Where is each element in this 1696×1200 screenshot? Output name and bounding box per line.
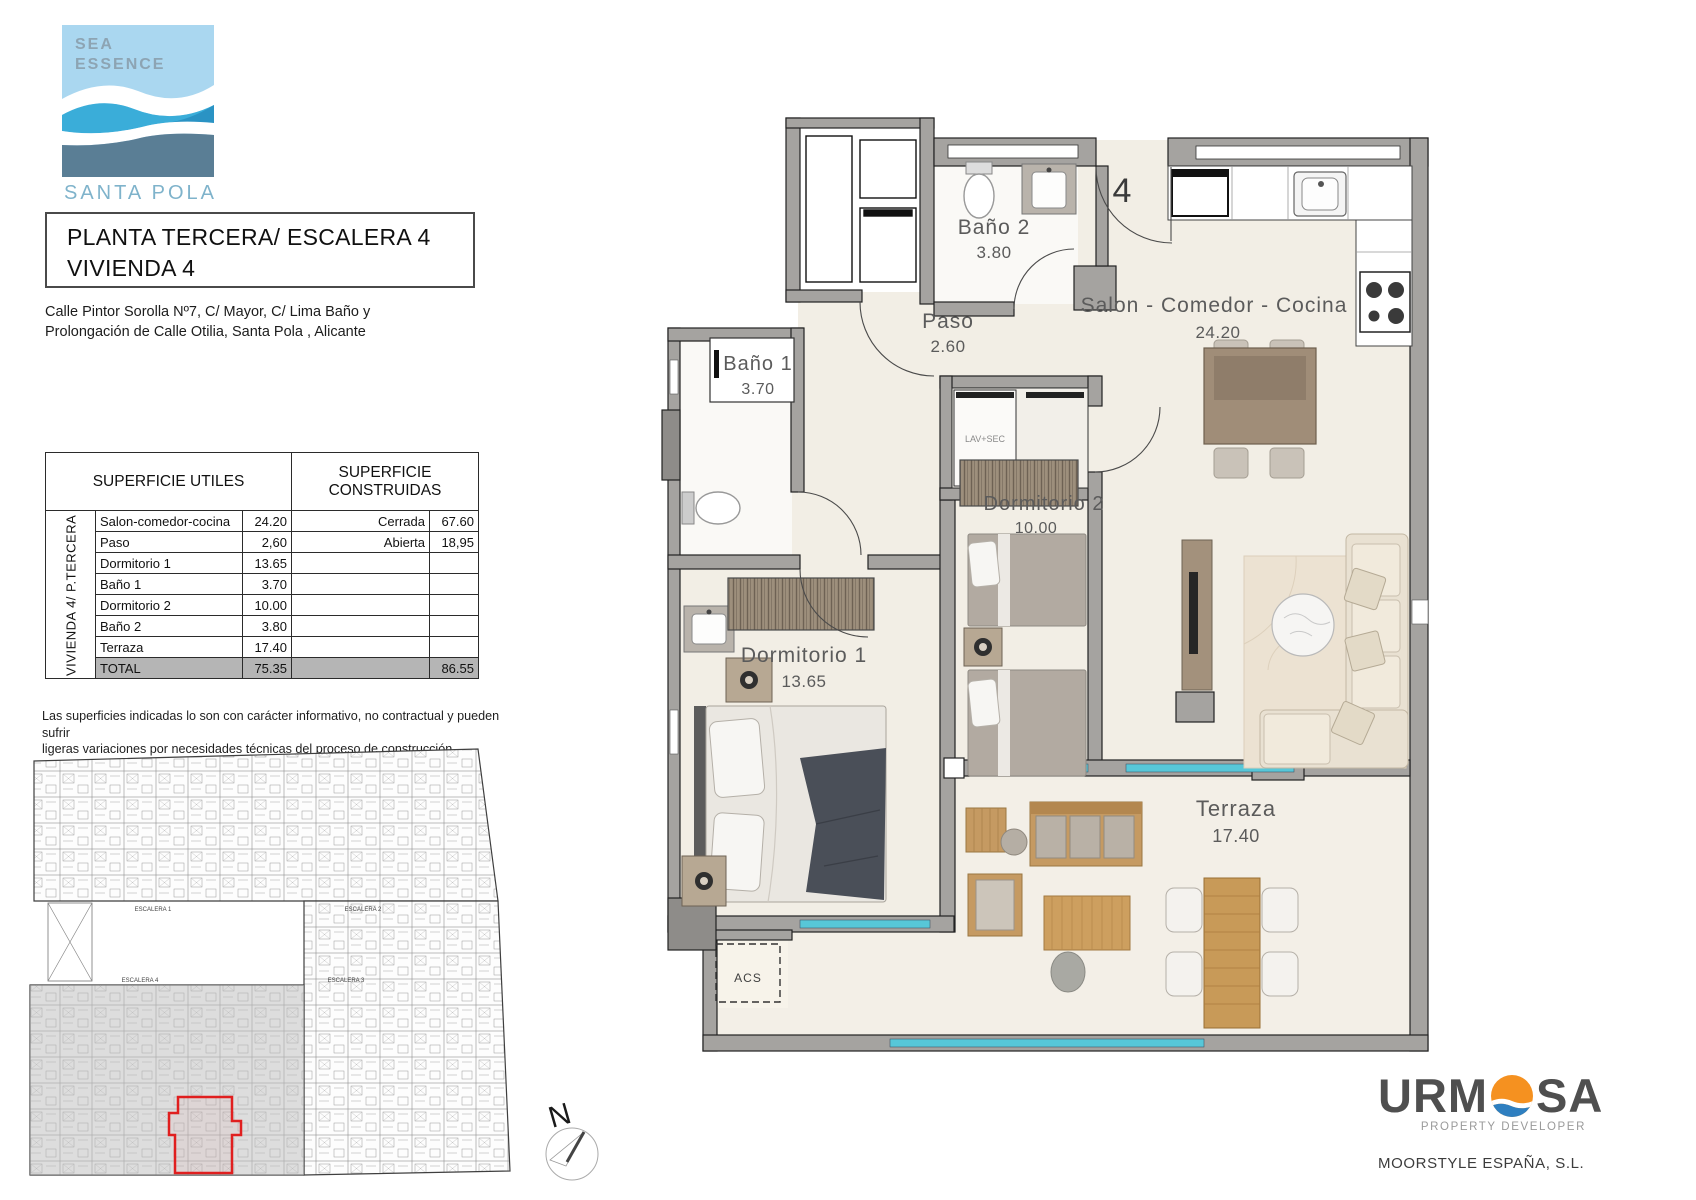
table-row: VIVIENDA 4/ P.TERCERA Salon-comedor-coci… — [46, 511, 479, 532]
outdoor-table-icon — [1044, 896, 1130, 950]
pouf-icon — [1051, 952, 1085, 992]
table-side-label: VIVIENDA 4/ P.TERCERA — [46, 511, 96, 679]
bath2-sink-icon — [1022, 164, 1076, 214]
room-area-terraza: 17.40 — [1212, 826, 1260, 846]
table-row: Baño 23.80 — [46, 616, 479, 637]
developer-tagline: PROPERTY DEVELOPER — [1378, 1121, 1586, 1133]
room-label-terraza: Terraza — [1196, 796, 1276, 821]
room-area-bano2: 3.80 — [976, 243, 1011, 262]
coffee-table-icon — [1272, 594, 1334, 656]
developer-logo: URM SA PROPERTY DEVELOPER MOORSTYLE ESPA… — [1378, 1072, 1638, 1172]
escalera-2-label: ESCALERA 2 — [345, 907, 382, 913]
kitchen-sink-icon — [1294, 172, 1346, 216]
highlighted-unit-outline — [169, 1097, 241, 1173]
lavsec-label: LAV+SEC — [965, 434, 1006, 444]
outdoor-sofa-icon — [1030, 802, 1142, 866]
stairwell-fixtures — [806, 136, 916, 282]
bath1-sink-icon — [684, 606, 734, 652]
address: Calle Pintor Sorolla Nº7, C/ Mayor, C/ L… — [45, 302, 370, 342]
key-plan-right-wing — [304, 901, 510, 1175]
table-row: Paso2,60 Abierta18,95 — [46, 532, 479, 553]
room-label-paso: Paso — [922, 310, 974, 333]
room-area-dorm1: 13.65 — [781, 672, 826, 691]
building-key-plan: ESCALERA 1 ESCALERA 2 ESCALERA 4 ESCALER… — [28, 745, 514, 1185]
table-header-construidas: SUPERFICIE CONSTRUIDAS — [292, 453, 479, 511]
table-row: Baño 13.70 — [46, 574, 479, 595]
key-plan-highlight-section — [30, 985, 304, 1175]
table-row: Terraza17.40 — [46, 637, 479, 658]
room-label-bano2: Baño 2 — [958, 216, 1031, 239]
nightstand-icon — [682, 856, 726, 906]
logo-wordmark: SEAESSENCE — [75, 35, 165, 75]
sea-essence-logo: SEAESSENCE — [62, 25, 214, 177]
escalera-1-label: ESCALERA 1 — [135, 907, 172, 913]
room-area-bano1: 3.70 — [741, 381, 774, 398]
table-row: Dormitorio 210.00 — [46, 595, 479, 616]
room-area-salon: 24.20 — [1195, 323, 1240, 342]
plan-title-line2: VIVIENDA 4 — [67, 253, 473, 284]
plan-title-box: PLANTA TERCERA/ ESCALERA 4 VIVIENDA 4 — [45, 212, 475, 288]
toilet-icon — [964, 174, 994, 218]
urmosa-sun-wave-icon — [1489, 1073, 1535, 1119]
logo-location: SANTA POLA — [64, 182, 217, 205]
side-table-icon — [966, 808, 1006, 852]
plan-title-line1: PLANTA TERCERA/ ESCALERA 4 — [67, 222, 473, 253]
toilet-tank-icon — [966, 162, 992, 174]
north-label: N — [545, 1097, 575, 1135]
toilet-icon — [696, 492, 740, 524]
unit-number-label: 4 — [1113, 172, 1132, 210]
developer-company: MOORSTYLE ESPAÑA, S.L. — [1378, 1155, 1638, 1172]
nightstand-icon — [964, 628, 1002, 666]
key-plan-top-wing — [34, 749, 498, 901]
table-header-utiles: SUPERFICIE UTILES — [46, 453, 292, 511]
escalera-4-label: ESCALERA 4 — [122, 978, 159, 984]
escalera-3-label: ESCALERA 3 — [328, 978, 365, 984]
room-area-paso: 2.60 — [930, 337, 965, 356]
stove-icon — [1360, 272, 1410, 332]
armchair-icon — [968, 874, 1022, 936]
room-label-dorm1: Dormitorio 1 — [741, 644, 867, 667]
urmosa-wordmark: URM SA — [1378, 1072, 1638, 1119]
room-area-dorm2: 10.00 — [1015, 520, 1058, 537]
floor-plan-sheet: SEAESSENCE SANTA POLA PLANTA TERCERA/ ES… — [0, 0, 1696, 1200]
north-compass: N — [512, 1088, 622, 1193]
surface-table: SUPERFICIE UTILES SUPERFICIE CONSTRUIDAS… — [45, 452, 479, 679]
acs-label: ACS — [734, 971, 762, 985]
wardrobe-dorm1 — [728, 578, 874, 630]
apartment-floor-plan: ACS Baño 2 3.80 4 Paso 2.60 Salon - Come… — [648, 110, 1460, 1062]
room-label-bano1: Baño 1 — [723, 353, 792, 375]
table-row: Dormitorio 113.65 — [46, 553, 479, 574]
room-label-dorm2: Dormitorio 2 — [984, 493, 1105, 515]
table-total-row: TOTAL75.35 86.55 — [46, 658, 479, 679]
stool-icon — [1001, 829, 1027, 855]
room-label-salon: Salon - Comedor - Cocina — [1081, 294, 1348, 317]
